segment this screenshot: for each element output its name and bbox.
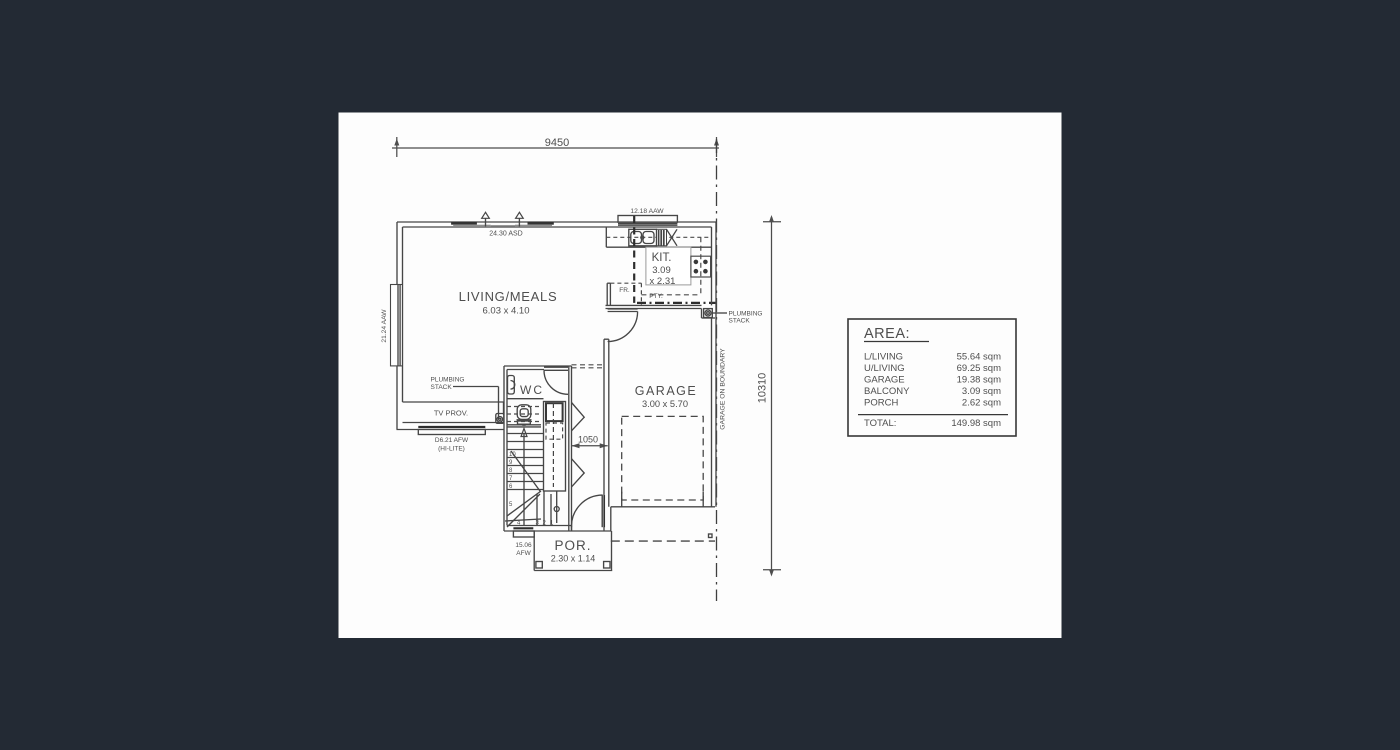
svg-text:KIT.: KIT. xyxy=(652,252,672,264)
svg-text:15.06: 15.06 xyxy=(515,542,532,549)
svg-text:LIVING/MEALS: LIVING/MEALS xyxy=(459,289,558,304)
svg-text:1050: 1050 xyxy=(578,435,598,445)
svg-text:PTY.: PTY. xyxy=(649,293,663,300)
svg-text:FR.: FR. xyxy=(619,287,630,294)
svg-text:L/LIVING: L/LIVING xyxy=(864,352,903,363)
svg-text:24.30 ASD: 24.30 ASD xyxy=(489,231,522,238)
svg-text:12.18 AAW: 12.18 AAW xyxy=(630,208,664,215)
svg-text:149.98 sqm: 149.98 sqm xyxy=(951,418,1001,429)
svg-text:9450: 9450 xyxy=(545,137,569,149)
svg-text:PLUMBING: PLUMBING xyxy=(431,377,465,384)
svg-text:2.30 x 1.14: 2.30 x 1.14 xyxy=(551,554,596,564)
svg-text:AFW: AFW xyxy=(516,550,531,557)
svg-text:x 2.31: x 2.31 xyxy=(650,276,676,287)
svg-text:TOTAL:: TOTAL: xyxy=(864,418,896,429)
svg-text:21.24 AAW: 21.24 AAW xyxy=(381,309,388,343)
svg-text:10: 10 xyxy=(509,452,516,458)
svg-text:D6.21 AFW: D6.21 AFW xyxy=(435,437,469,444)
svg-text:GARAGE ON BOUNDARY: GARAGE ON BOUNDARY xyxy=(720,348,727,430)
svg-text:STACK: STACK xyxy=(729,318,751,325)
svg-text:2.62 sqm: 2.62 sqm xyxy=(962,398,1001,409)
svg-text:GARAGE: GARAGE xyxy=(864,375,905,386)
svg-text:WC: WC xyxy=(520,383,544,397)
svg-text:3.00 x 5.70: 3.00 x 5.70 xyxy=(642,399,688,409)
svg-text:3.09: 3.09 xyxy=(652,265,671,276)
svg-text:GARAGE: GARAGE xyxy=(635,384,698,398)
svg-text:19.38 sqm: 19.38 sqm xyxy=(957,375,1001,386)
svg-text:3.09 sqm: 3.09 sqm xyxy=(962,386,1001,397)
svg-text:6.03 x 4.10: 6.03 x 4.10 xyxy=(482,306,529,317)
svg-text:AREA:: AREA: xyxy=(864,326,910,342)
svg-text:(HI-LITE): (HI-LITE) xyxy=(438,446,465,453)
svg-text:55.64 sqm: 55.64 sqm xyxy=(957,352,1001,363)
svg-text:POR.: POR. xyxy=(554,538,591,553)
svg-text:PORCH: PORCH xyxy=(864,398,898,409)
svg-text:PLUMBING: PLUMBING xyxy=(729,311,763,318)
svg-text:69.25 sqm: 69.25 sqm xyxy=(957,363,1001,374)
svg-text:TV PROV.: TV PROV. xyxy=(434,409,468,418)
svg-text:STACK: STACK xyxy=(431,384,453,391)
svg-text:U/LIVING: U/LIVING xyxy=(864,363,905,374)
svg-text:10310: 10310 xyxy=(757,373,769,404)
svg-text:BALCONY: BALCONY xyxy=(864,386,910,397)
